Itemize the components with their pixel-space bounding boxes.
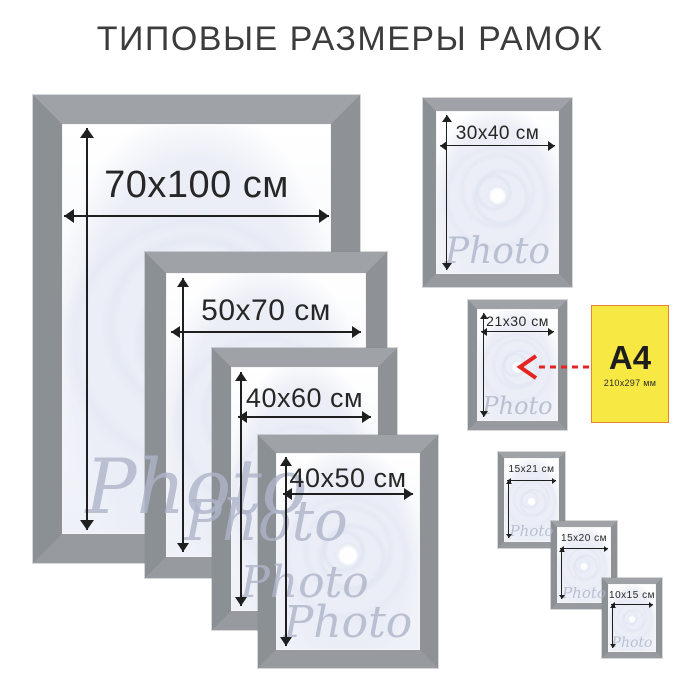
photo-mat: Photo 15x20 см xyxy=(558,528,610,602)
photo-mat: Photo 30x40 см xyxy=(437,112,558,273)
page-title: ТИПОВЫЕ РАЗМЕРЫ РАМОК xyxy=(0,20,700,59)
height-dimension-arrow xyxy=(561,548,562,599)
frame-size-label: 40x60 см xyxy=(232,385,377,412)
a4-paper-card: A4 210x297 мм xyxy=(591,305,669,423)
photo-watermark: Photo xyxy=(167,494,365,550)
frame-15x21: Photo 15x21 см xyxy=(498,452,565,548)
width-dimension-arrow xyxy=(507,480,556,481)
frame-size-label: 50x70 см xyxy=(167,296,365,326)
width-dimension-arrow xyxy=(238,416,371,418)
frame-40x50: Photo 40x50 см xyxy=(258,435,438,668)
frame-size-label: 70x100 см xyxy=(63,166,330,204)
frame-sizes-infographic: ТИПОВЫЕ РАЗМЕРЫ РАМОК Photo 70x100 см Ph… xyxy=(0,0,700,700)
photo-watermark: Photo xyxy=(478,394,557,418)
frame-size-label: 30x40 см xyxy=(437,124,558,143)
width-dimension-arrow xyxy=(283,493,413,495)
frame-size-label: 21x30 см xyxy=(478,314,557,328)
height-dimension-arrow xyxy=(612,604,613,648)
photo-watermark: Photo xyxy=(437,234,558,270)
height-dimension-arrow xyxy=(508,480,509,538)
frame-30x40: Photo 30x40 см xyxy=(423,98,572,287)
frame-10x15: Photo 10x15 см xyxy=(602,578,662,658)
width-dimension-arrow xyxy=(171,331,361,333)
photo-watermark: Photo xyxy=(505,524,558,539)
photo-watermark: Photo xyxy=(609,636,655,650)
frame-size-label: 15x21 см xyxy=(505,465,558,475)
width-dimension-arrow xyxy=(481,331,554,332)
a4-dimensions: 210x297 мм xyxy=(604,378,656,388)
photo-watermark: Photo xyxy=(277,601,419,645)
frame-size-label: 10x15 см xyxy=(609,591,655,601)
width-dimension-arrow xyxy=(611,604,653,605)
photo-mat: Photo 10x15 см xyxy=(609,585,655,651)
a4-label: A4 xyxy=(609,341,651,374)
width-dimension-arrow xyxy=(560,548,608,549)
a4-pointer-arrow-icon xyxy=(512,352,596,382)
photo-mat: Photo 15x21 см xyxy=(505,459,558,541)
width-dimension-arrow xyxy=(440,145,555,146)
photo-watermark: Photo xyxy=(558,586,610,601)
width-dimension-arrow xyxy=(64,215,329,217)
frame-size-label: 40x50 см xyxy=(277,465,419,492)
frame-15x20: Photo 15x20 см xyxy=(551,521,617,609)
frame-size-label: 15x20 см xyxy=(558,534,610,544)
